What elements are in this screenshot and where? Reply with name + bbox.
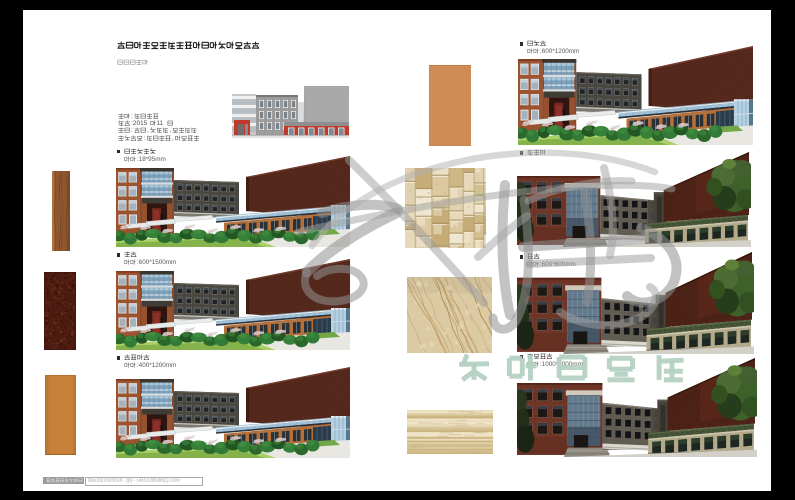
svg-text:15210285320 - QQ - 148121856@Q: 15210285320 - QQ - 148121856@QQ.COM: [96, 478, 180, 482]
